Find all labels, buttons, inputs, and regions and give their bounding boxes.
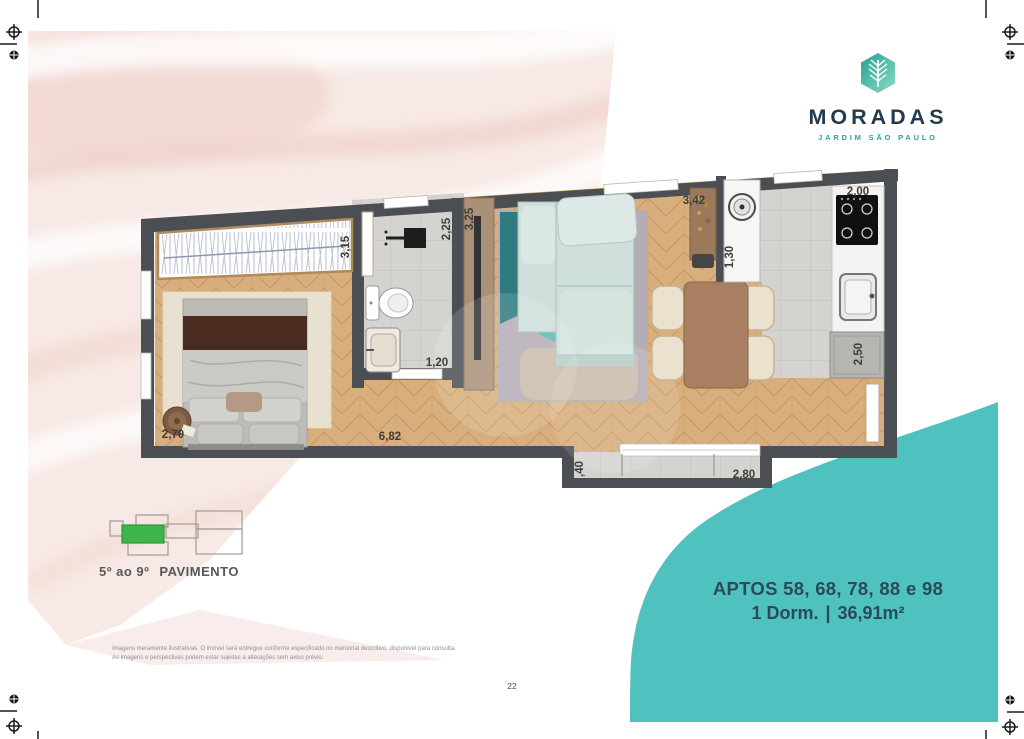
dining-table (684, 282, 748, 388)
entry-door (866, 384, 879, 442)
key-plan-highlight (122, 525, 164, 543)
floor-word: PAVIMENTO (159, 564, 239, 579)
dining-chair (652, 336, 684, 380)
toilet (366, 286, 413, 320)
dim-bathroom: 1,20 (426, 357, 448, 369)
bathroom-sink (366, 328, 400, 372)
bedroom-window-2 (141, 353, 151, 399)
unit-separator: | (818, 603, 837, 623)
disclaimer-line2: As imagens e perspectivas podem estar su… (112, 654, 457, 663)
unit-dorm: 1 Dorm. (751, 603, 818, 623)
brand-logo: MORADAS JARDIM SÃO PAULO (790, 52, 966, 142)
dim-living: 3,25 (464, 207, 476, 230)
dim-service: 3,42 (683, 195, 705, 207)
crop-marks-bottom-left (0, 695, 38, 739)
disclaimer-line1: Imagens meramente ilustrativas. O imóvel… (112, 645, 457, 654)
bed-cushion (226, 392, 262, 412)
dim-kitchen: 2,00 (847, 186, 869, 198)
unit-info: APTOS 58, 68, 78, 88 e 98 1 Dorm.|36,91m… (683, 578, 973, 624)
dim-counter: 2,50 (853, 343, 865, 365)
right-wall (884, 169, 897, 458)
shower-head (404, 228, 426, 248)
unit-title: APTOS 58, 68, 78, 88 e 98 (683, 578, 973, 600)
unit-subtitle: 1 Dorm.|36,91m² (683, 603, 973, 624)
dining-chair (652, 286, 684, 330)
dim-shower: 2,25 (441, 217, 453, 240)
brand-tagline: JARDIM SÃO PAULO (790, 133, 966, 142)
floor-plan: 3,15 2,25 3,25 3,42 2,00 1,30 1,20 2,70 … (141, 169, 898, 488)
bedroom-window-1 (141, 271, 151, 319)
crop-marks-top-right (986, 0, 1024, 60)
bedroom (158, 219, 352, 450)
dim-laundry: 1,30 (724, 246, 736, 268)
dim-bedroom: 2,70 (162, 429, 184, 441)
dim-balcony-width: 2,80 (733, 469, 755, 481)
bottom-wall-right (764, 446, 897, 458)
hexagon-leaf-icon (858, 52, 898, 96)
disclaimer: Imagens meramente ilustrativas. O imóvel… (112, 645, 457, 662)
kitchen-sink (840, 274, 876, 320)
dim-wardrobe: 3,15 (340, 235, 352, 258)
brand-name: MORADAS (790, 105, 966, 130)
bed-pillow (197, 424, 243, 444)
bedroom-door (362, 212, 373, 276)
dim-balcony-depth: ,40 (574, 461, 586, 477)
bed-blanket (183, 316, 307, 352)
cooktop (836, 195, 878, 245)
left-wall (141, 224, 154, 458)
brochure-page: 3,15 2,25 3,25 3,42 2,00 1,30 1,20 2,70 … (0, 0, 1024, 739)
dim-hall: 6,82 (379, 431, 401, 443)
bed (183, 299, 307, 450)
unit-area: 36,91m² (838, 603, 905, 623)
floor-key-label: 5º ao 9ºPAVIMENTO (99, 564, 284, 579)
laundry-faucet (692, 254, 714, 268)
bed-pillow (249, 424, 299, 444)
page-number: 22 (500, 681, 524, 691)
bed-headboard (188, 444, 304, 450)
floor-range: 5º ao 9º (99, 564, 149, 579)
washer (729, 194, 755, 220)
